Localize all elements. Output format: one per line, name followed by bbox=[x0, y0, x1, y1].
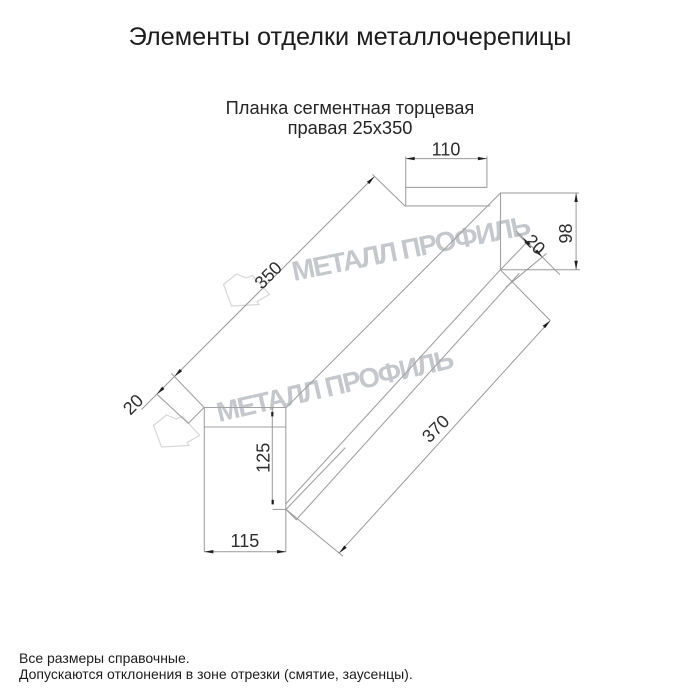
svg-text:98: 98 bbox=[556, 223, 576, 243]
svg-text:115: 115 bbox=[231, 531, 260, 551]
svg-text:20: 20 bbox=[119, 390, 147, 418]
svg-text:110: 110 bbox=[432, 139, 461, 159]
svg-text:125: 125 bbox=[254, 443, 274, 473]
svg-text:350: 350 bbox=[251, 258, 286, 293]
svg-text:370: 370 bbox=[418, 411, 453, 446]
svg-text:МЕТАЛЛ ПРОФИЛЬ: МЕТАЛЛ ПРОФИЛЬ bbox=[213, 343, 456, 428]
